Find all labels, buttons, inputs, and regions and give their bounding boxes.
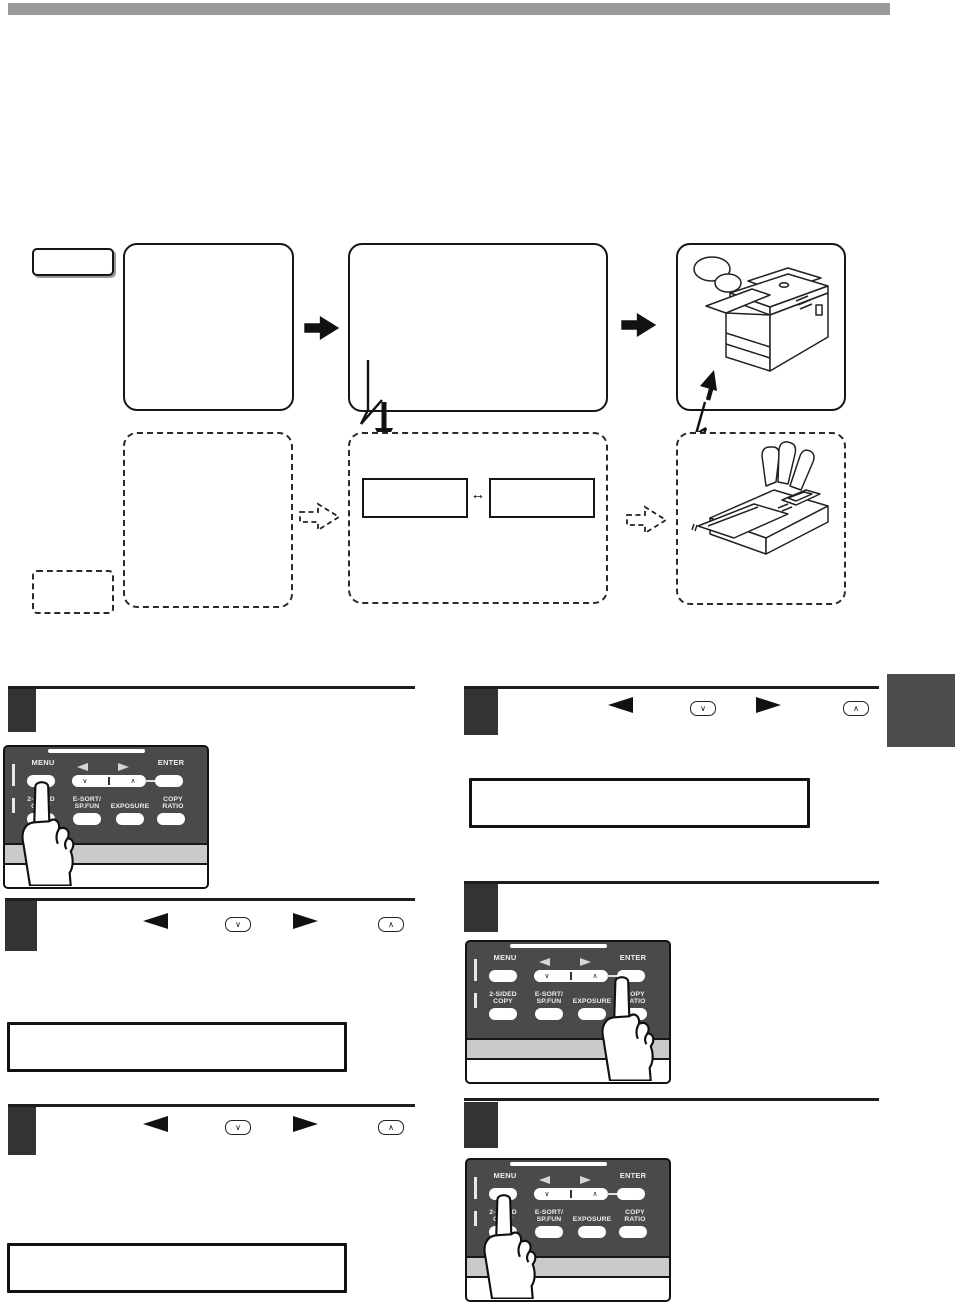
dashed-flow-box-2: ↔ [348, 432, 608, 604]
enter-key-label: ENTER [151, 758, 191, 768]
2-sided-copy-key [489, 1008, 517, 1020]
left-arrow-icon [539, 1176, 550, 1184]
diagram-dashed-label-box [32, 570, 114, 614]
rocker-divider [108, 777, 110, 785]
left-arrow-icon [77, 763, 88, 771]
exposure-key [116, 813, 144, 825]
scroll-up-key-icon: ∧ [378, 917, 404, 932]
menu-key [489, 970, 517, 982]
panel-top-edge [510, 1162, 607, 1166]
chevron-up-icon: ∧ [388, 1124, 394, 1132]
chevron-up-icon: ∧ [853, 705, 859, 713]
step-2-badge [5, 901, 37, 951]
step-3-rule [8, 1104, 415, 1107]
pressing-hand-icon [477, 1191, 552, 1299]
scroll-down-key-icon: ∨ [225, 917, 251, 932]
compare-rect-right [489, 478, 595, 518]
exposure-key-label: EXPOSURE [570, 1207, 614, 1224]
solid-right-arrow-icon [620, 310, 658, 340]
dashed-flow-box-3 [676, 432, 846, 605]
page-header-bar [8, 3, 890, 15]
right-arrow-icon [580, 958, 591, 966]
right-arrow-icon [118, 763, 129, 771]
2-sided-copy-key-label: 2-SIDEDCOPY [481, 989, 525, 1006]
right-arrow-icon [293, 913, 318, 929]
rocker-divider [570, 972, 572, 980]
menu-key-label: MENU [483, 1171, 527, 1181]
enter-key-label: ENTER [613, 1171, 653, 1181]
chevron-down-icon: ∨ [235, 1124, 241, 1132]
right-arrow-icon [756, 697, 781, 713]
step-4-rule [464, 686, 879, 689]
scroll-down-key-icon: ∨ [690, 701, 716, 716]
right-arrow-icon [293, 1116, 318, 1132]
control-panel-press-menu: MENU ∨ ∧ ENTER 2-SIDEDCOPY E-SORT/SP.FUN… [465, 1158, 671, 1302]
left-arrow-icon [143, 1116, 168, 1132]
lcd-display-box [7, 1243, 347, 1293]
control-panel-press-menu: MENU ∨ ∧ ENTER 2-SIDEDCOPY E-SORT/SP.FUN… [3, 745, 209, 889]
panel-left-mark [474, 993, 477, 1008]
double-arrow-icon: ↔ [466, 487, 490, 503]
scroll-up-key-icon: ∧ [843, 701, 869, 716]
step-6-rule [464, 1098, 879, 1101]
right-arrow-icon [580, 1176, 591, 1184]
rocker-divider [570, 1190, 572, 1198]
step-1-rule [8, 686, 415, 689]
enter-key [617, 1188, 645, 1200]
left-arrow-icon [143, 913, 168, 929]
step-5-rule [464, 881, 879, 884]
step-2-rule [5, 898, 415, 901]
exposure-key [578, 1226, 606, 1238]
dashed-flow-box-1 [123, 432, 293, 608]
chevron-down-icon: ∨ [544, 973, 549, 980]
menu-key-label: MENU [483, 953, 527, 963]
step-4-badge [464, 689, 498, 735]
copy-ratio-key-label: COPYRATIO [153, 794, 193, 811]
copy-ratio-key [157, 813, 185, 825]
chevron-up-icon: ∧ [131, 778, 136, 785]
exposure-key-label: EXPOSURE [108, 794, 152, 811]
fax-illustration [678, 434, 844, 599]
solid-right-arrow-icon [303, 313, 341, 343]
step-6-badge [464, 1102, 498, 1148]
scroll-down-key-icon: ∨ [225, 1120, 251, 1135]
manual-page: ↔ MENU [0, 0, 955, 1309]
panel-top-edge [48, 749, 145, 753]
dashed-right-arrow-icon [625, 503, 669, 537]
left-arrow-icon [539, 958, 550, 966]
e-sort-sp-fun-key-label: E-SORT/SP.FUN [527, 989, 571, 1006]
panel-top-edge [510, 944, 607, 948]
pressing-hand-icon [595, 973, 670, 1081]
menu-key-label: MENU [21, 758, 65, 768]
scroll-up-key-icon: ∧ [378, 1120, 404, 1135]
enter-key [155, 775, 183, 787]
control-panel-press-enter: MENU ∨ ∧ ENTER 2-SIDEDCOPY E-SORT/SP.FUN… [465, 940, 671, 1084]
chevron-up-icon: ∧ [593, 1191, 598, 1198]
dashed-right-arrow-icon [298, 500, 342, 534]
compare-rect-left [362, 478, 468, 518]
chevron-up-icon: ∧ [388, 921, 394, 929]
pressing-hand-icon [15, 778, 90, 886]
copy-ratio-key [619, 1226, 647, 1238]
panel-left-mark [474, 959, 477, 981]
chevron-down-icon: ∨ [700, 705, 706, 713]
step-5-badge [464, 884, 498, 932]
enter-key-label: ENTER [613, 953, 653, 963]
copy-ratio-key-label: COPYRATIO [615, 1207, 655, 1224]
flow-box-1 [123, 243, 294, 411]
diagram-label-box [32, 248, 114, 276]
left-arrow-icon [608, 697, 633, 713]
lcd-display-box [469, 778, 810, 828]
e-sort-sp-fun-key [535, 1008, 563, 1020]
step-1-badge [8, 689, 36, 732]
lcd-display-box [7, 1022, 347, 1072]
chevron-down-icon: ∨ [235, 921, 241, 929]
step-3-badge [8, 1107, 36, 1155]
page-side-tab [887, 674, 955, 747]
